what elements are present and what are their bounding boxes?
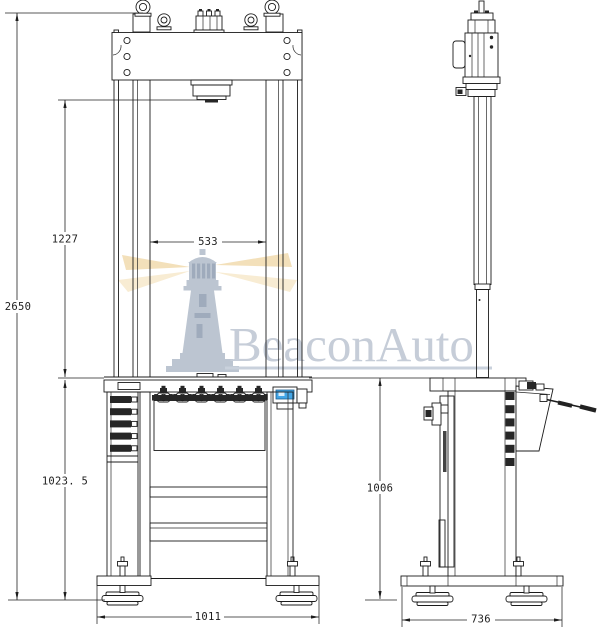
dimension-daylight-opening: 1227 xyxy=(52,234,79,246)
eye-bolt-icon xyxy=(264,0,280,16)
dim-label: 1006 xyxy=(367,483,394,495)
dimension-base-width: 1011 xyxy=(195,611,222,623)
drawing-canvas: BeaconAuto xyxy=(0,0,606,631)
eye-bolt-icon xyxy=(244,14,258,30)
side-table xyxy=(430,378,526,391)
side-view xyxy=(401,1,596,606)
pendant-bracket xyxy=(516,381,553,451)
dimension-side-height: 1006 xyxy=(367,483,394,495)
dim-label: 1011 xyxy=(195,611,222,623)
dim-label: 1023. 5 xyxy=(42,476,88,488)
dim-label: 736 xyxy=(471,614,491,626)
dim-label: 1227 xyxy=(52,234,79,246)
dimension-table-height: 1023. 5 xyxy=(42,476,88,488)
press-ram xyxy=(191,80,232,103)
eye-bolt-icon xyxy=(157,14,171,30)
watermark-underline xyxy=(225,367,492,370)
digital-display xyxy=(273,387,307,409)
side-column xyxy=(474,97,491,378)
technical-drawing: BeaconAuto xyxy=(0,0,606,631)
dimension-total-height: 2650 xyxy=(5,301,32,313)
eye-bolt-icon xyxy=(135,0,151,16)
base-feet xyxy=(97,557,319,605)
top-crossbeam xyxy=(112,33,302,81)
dim-label: 533 xyxy=(198,236,218,248)
cabinet-window xyxy=(152,395,267,451)
drawer-unit xyxy=(107,392,138,578)
dimension-column-clearance: 533 xyxy=(198,236,218,248)
dimension-side-depth: 736 xyxy=(471,614,491,626)
dim-label: 2650 xyxy=(5,301,32,313)
side-cabinet xyxy=(424,391,516,577)
watermark: BeaconAuto xyxy=(118,249,492,372)
cylinder-assembly xyxy=(453,1,500,97)
junction-box xyxy=(194,9,224,33)
side-base-feet xyxy=(401,557,563,606)
